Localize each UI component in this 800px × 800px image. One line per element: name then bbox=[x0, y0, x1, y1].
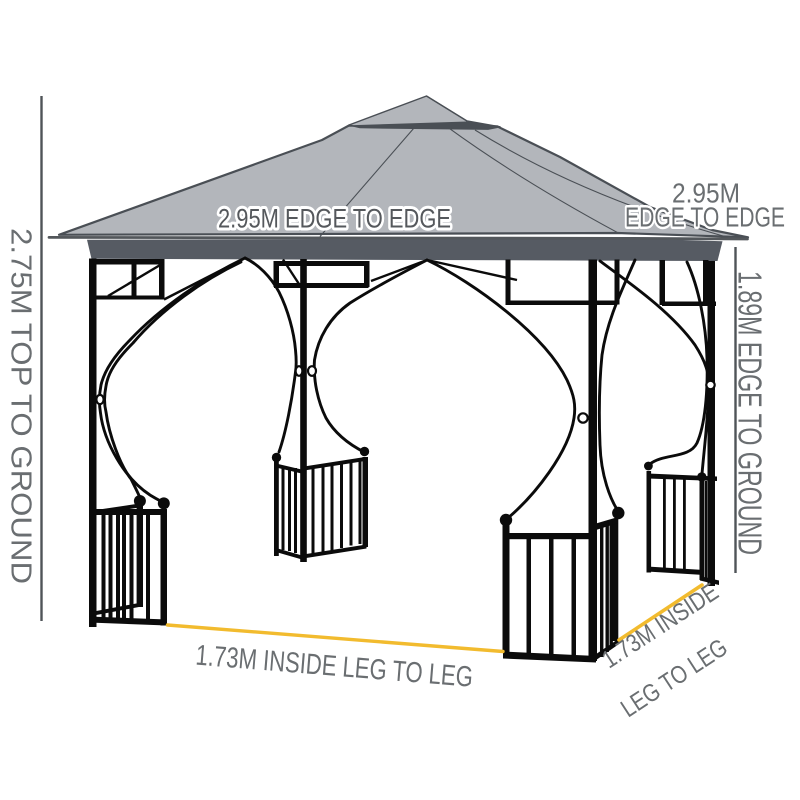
svg-text:EDGE TO EDGE: EDGE TO EDGE bbox=[625, 202, 785, 233]
svg-text:2.95M EDGE TO EDGE: 2.95M EDGE TO EDGE bbox=[218, 203, 451, 233]
svg-text:2.75M TOP TO GROUND: 2.75M TOP TO GROUND bbox=[5, 228, 37, 584]
svg-text:1.89M EDGE TO GROUND: 1.89M EDGE TO GROUND bbox=[732, 271, 769, 555]
